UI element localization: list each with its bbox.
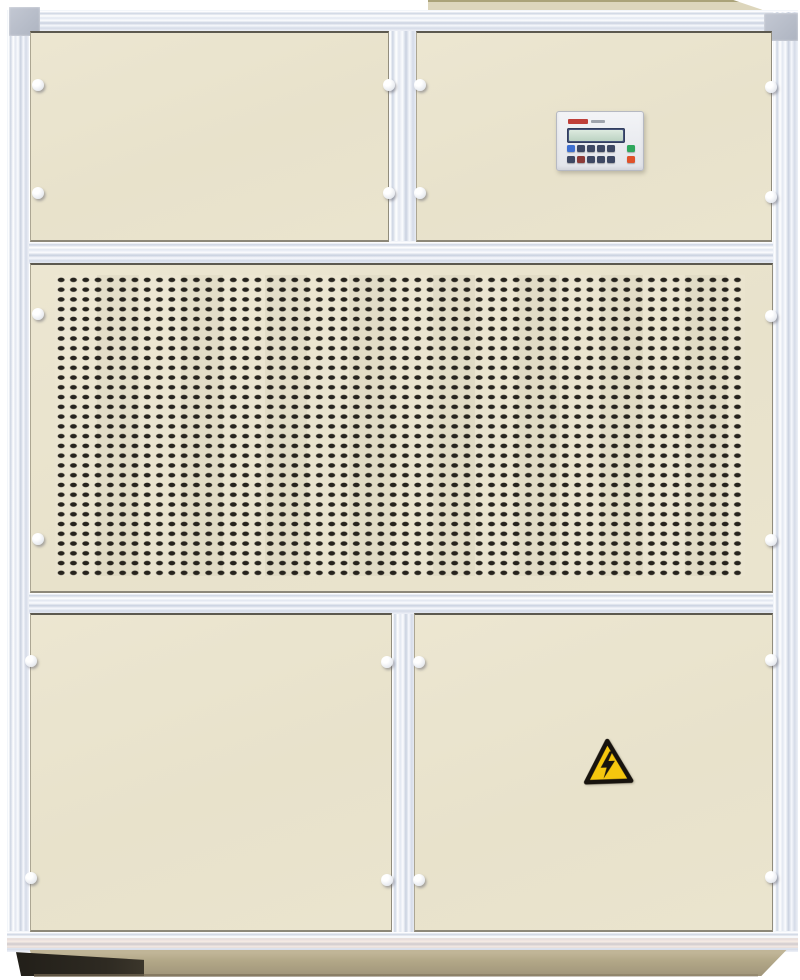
rail-horizontal-upper (29, 241, 773, 264)
navy-keypad-button (607, 145, 615, 152)
panel-fastener-knob (414, 187, 426, 199)
controller-lcd (567, 128, 625, 143)
controller-brand-text (591, 120, 605, 123)
panel-fastener-knob (765, 654, 777, 666)
panel-fastener-knob (32, 308, 44, 320)
panel-fastener-knob (32, 79, 44, 91)
frame-rail-top (7, 10, 798, 31)
panel-fastener-knob (413, 874, 425, 886)
frame-rail-right (773, 12, 798, 952)
rail-horizontal-lower (29, 592, 773, 614)
panel-fastener-knob (32, 187, 44, 199)
red-keypad-button (627, 156, 635, 163)
navy-keypad-button (597, 145, 605, 152)
controller-brand-mark (568, 119, 588, 124)
floor-shadow-line (34, 974, 758, 977)
frame-rail-bottom (7, 931, 798, 952)
high-voltage-warning-label (582, 734, 634, 791)
green-keypad-button (627, 145, 635, 152)
panel-fastener-knob (381, 874, 393, 886)
frame-mullion-lower (391, 613, 415, 932)
grille-panel (30, 263, 773, 593)
navy-keypad-button (587, 145, 595, 152)
panel-fastener-knob (765, 871, 777, 883)
controller-lcd-screen (569, 130, 623, 141)
panel-fastener-knob (765, 191, 777, 203)
navy-keypad-button (597, 156, 605, 163)
panel-fastener-knob (25, 872, 37, 884)
frame-rail-left (7, 10, 29, 952)
panel-fastener-knob (765, 534, 777, 546)
panel-fastener-knob (765, 81, 777, 93)
panel-fastener-knob (32, 533, 44, 545)
navy-keypad-button (567, 156, 575, 163)
panel-fastener-knob (414, 79, 426, 91)
door-lower-left (30, 613, 392, 932)
blue-keypad-button (567, 145, 575, 152)
panel-fastener-knob (383, 187, 395, 199)
panel-upper-left (30, 31, 389, 242)
dark-red-keypad-button (577, 156, 585, 163)
navy-keypad-button (587, 156, 595, 163)
frame-mullion-upper (388, 31, 417, 242)
panel-fastener-knob (383, 79, 395, 91)
panel-fastener-knob (413, 656, 425, 668)
panel-fastener-knob (381, 656, 393, 668)
controller-panel (556, 111, 644, 171)
panel-fastener-knob (25, 655, 37, 667)
panel-fastener-knob (765, 310, 777, 322)
photo-frame: Front view of a floor-standing HVAC cabi… (0, 0, 800, 980)
navy-keypad-button (577, 145, 585, 152)
controller-button-row-1 (567, 145, 635, 152)
controller-button-row-2 (567, 156, 635, 163)
navy-keypad-button (607, 156, 615, 163)
grille-perforation (55, 275, 745, 576)
